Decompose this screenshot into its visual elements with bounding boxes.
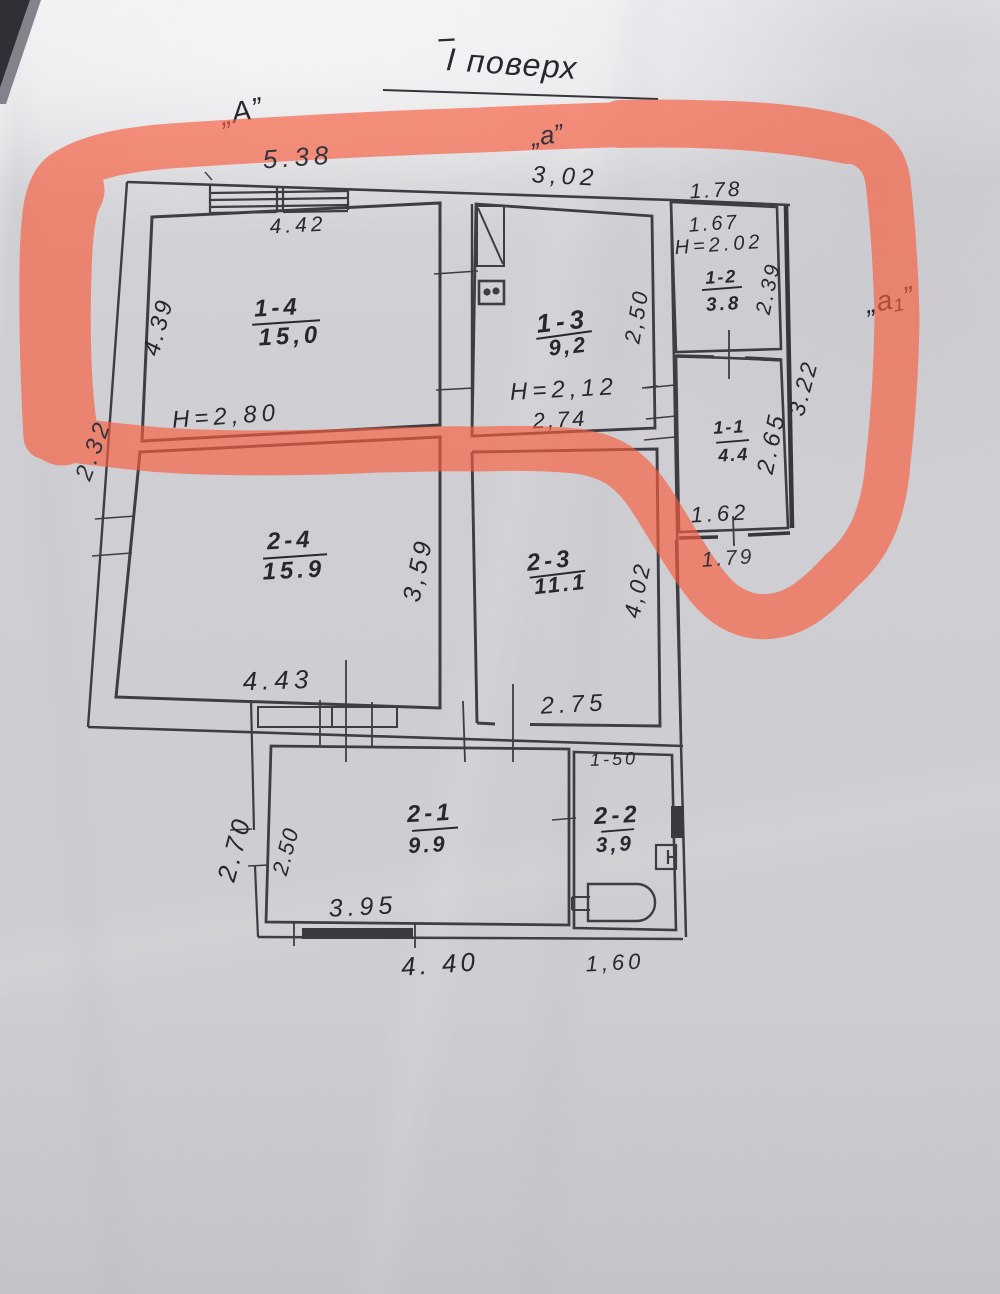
svg-text:3,02: 3,02 xyxy=(531,161,599,191)
svg-text:2-1: 2-1 xyxy=(405,799,454,828)
svg-text:2.75: 2.75 xyxy=(539,689,608,720)
svg-text:15.9: 15.9 xyxy=(262,555,326,585)
svg-text:1.78: 1.78 xyxy=(689,178,743,204)
svg-text:4.43: 4.43 xyxy=(242,664,314,696)
svg-text:5.38: 5.38 xyxy=(262,140,335,175)
svg-text:1-50: 1-50 xyxy=(590,748,639,770)
svg-text:4.4: 4.4 xyxy=(717,444,750,466)
svg-text:1-1: 1-1 xyxy=(713,416,746,438)
svg-text:3.95: 3.95 xyxy=(328,891,398,923)
svg-text:1,60: 1,60 xyxy=(585,948,645,976)
svg-text:3.8: 3.8 xyxy=(706,293,742,316)
svg-text:1.62: 1.62 xyxy=(690,499,750,527)
svg-text:1-2: 1-2 xyxy=(705,266,738,288)
svg-text:1.79: 1.79 xyxy=(701,545,755,572)
svg-text:2-2: 2-2 xyxy=(592,801,641,830)
svg-text:Н=2,12: Н=2,12 xyxy=(509,373,618,406)
svg-text:4. 40: 4. 40 xyxy=(400,946,480,981)
svg-text:„а”: „а” xyxy=(528,118,566,152)
svg-text:2-4: 2-4 xyxy=(265,526,314,555)
svg-text:1-4: 1-4 xyxy=(253,293,301,322)
svg-text:9,2: 9,2 xyxy=(547,332,589,361)
svg-text:3,9: 3,9 xyxy=(595,832,634,857)
svg-text:4.42: 4.42 xyxy=(269,213,327,239)
svg-text:9.9: 9.9 xyxy=(407,831,448,858)
svg-text:15,0: 15,0 xyxy=(258,321,322,351)
